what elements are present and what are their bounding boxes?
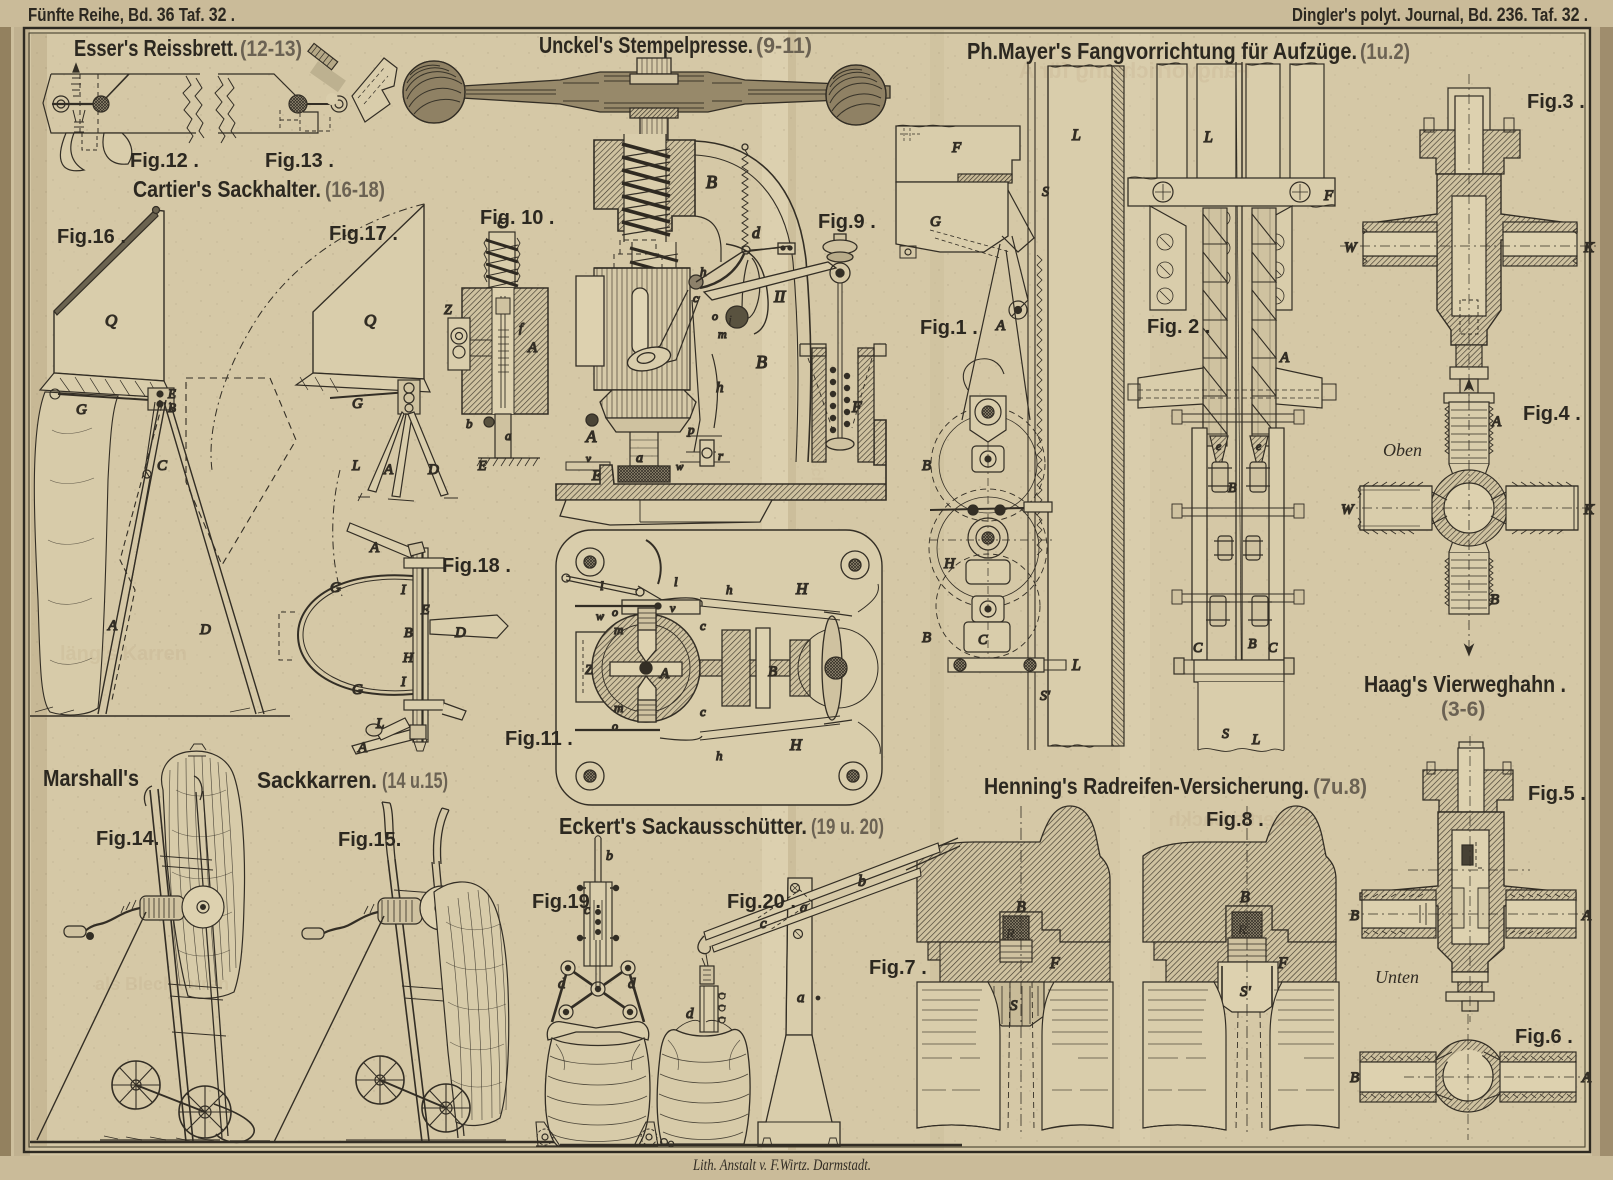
svg-text:S': S' [1040, 689, 1051, 704]
svg-text:Fig.5 .: Fig.5 . [1528, 783, 1586, 805]
svg-text:S: S [1010, 998, 1018, 1014]
svg-text:G: G [352, 396, 363, 412]
svg-text:Sackkarren.: Sackkarren. [257, 767, 377, 793]
svg-text:Q: Q [364, 311, 376, 330]
svg-text:v: v [586, 453, 591, 465]
svg-text:A: A [1491, 414, 1502, 430]
svg-text:b: b [858, 873, 866, 890]
svg-text:C: C [978, 633, 988, 648]
svg-text:p: p [687, 422, 695, 437]
svg-text:R: R [1237, 923, 1247, 938]
svg-text:o: o [612, 605, 618, 619]
svg-text:(12-13): (12-13) [240, 36, 302, 61]
svg-text:G: G [330, 580, 341, 596]
svg-text:v: v [670, 601, 676, 615]
svg-text:Fig.16 .: Fig.16 . [57, 226, 126, 248]
svg-text:Esser's Reissbrett.: Esser's Reissbrett. [74, 35, 238, 61]
svg-text:Oben: Oben [1383, 440, 1422, 460]
svg-text:d: d [686, 1006, 694, 1022]
svg-text:l: l [600, 578, 604, 593]
svg-text:A: A [1279, 350, 1290, 366]
svg-text:F: F [1277, 955, 1288, 972]
svg-text:c: c [760, 916, 767, 932]
svg-text:B: B [1350, 1070, 1359, 1086]
svg-text:w: w [676, 461, 684, 473]
svg-text:B: B [922, 458, 931, 474]
svg-text:Lith. Anstalt v. F.Wirtz. Darm: Lith. Anstalt v. F.Wirtz. Darmstadt. [692, 1157, 871, 1174]
svg-text:Dingler's polyt. Journal, Bd.: Dingler's polyt. Journal, Bd. 236. Taf. … [1292, 5, 1588, 26]
svg-text:A: A [383, 462, 394, 478]
svg-text:Fig.12 .: Fig.12 . [130, 150, 199, 172]
svg-text:B: B [756, 352, 767, 372]
svg-text:a: a [636, 451, 643, 466]
svg-text:Fig.14.: Fig.14. [96, 828, 159, 850]
svg-text:B: B [168, 400, 176, 415]
svg-text:R: R [1005, 927, 1015, 942]
svg-text:Fig.13 .: Fig.13 . [265, 150, 334, 172]
svg-text:A: A [1581, 908, 1592, 924]
svg-text:b: b [466, 416, 473, 431]
svg-text:D: D [199, 622, 211, 638]
svg-text:A: A [995, 318, 1006, 334]
svg-text:Q: Q [105, 311, 117, 330]
svg-text:Fig.19 .: Fig.19 . [532, 891, 601, 913]
svg-text:Eckert's Sackausschütter.: Eckert's Sackausschütter. [559, 813, 807, 839]
svg-text:c: c [700, 618, 706, 633]
svg-text:a: a [797, 990, 805, 1006]
svg-text:S': S' [1240, 984, 1252, 1000]
svg-text:F: F [851, 399, 862, 416]
svg-text:h: h [716, 748, 723, 763]
svg-text:c: c [693, 291, 699, 305]
svg-text:H: H [943, 556, 956, 572]
svg-text:E: E [420, 603, 430, 618]
svg-text:H: H [795, 581, 809, 598]
svg-text:S: S [1222, 727, 1229, 742]
svg-text:A: A [1581, 1070, 1592, 1086]
svg-text:K: K [1583, 240, 1595, 256]
svg-text:o: o [712, 309, 718, 323]
svg-text:B: B [404, 626, 413, 641]
svg-text:Haag's Vierweghahn .: Haag's Vierweghahn . [1364, 671, 1566, 697]
svg-text:c: c [700, 704, 706, 719]
svg-text:b: b [606, 849, 613, 864]
svg-text:(16-18): (16-18) [325, 177, 385, 202]
svg-text:W: W [1344, 240, 1358, 256]
svg-text:F: F [1323, 188, 1334, 204]
svg-text:G: G [930, 214, 941, 230]
svg-text:Fig.3 .: Fig.3 . [1527, 91, 1585, 113]
svg-text:d: d [752, 225, 761, 242]
svg-text:(19 u. 20): (19 u. 20) [811, 814, 884, 839]
svg-text:(7u.8): (7u.8) [1313, 774, 1367, 799]
svg-text:E: E [477, 459, 487, 474]
svg-text:B: B [706, 172, 717, 192]
svg-text:B: B [922, 630, 931, 646]
svg-text:F: F [1049, 955, 1060, 972]
svg-text:Ph.Mayer's Fangvorrichtung für: Ph.Mayer's Fangvorrichtung für Aufzüge. [967, 38, 1357, 64]
svg-text:m: m [614, 700, 623, 715]
svg-text:Fig.9 .: Fig.9 . [818, 211, 876, 233]
svg-text:D: D [427, 462, 439, 478]
svg-text:a: a [505, 428, 512, 443]
svg-text:e: e [1216, 439, 1222, 453]
svg-text:A: A [585, 427, 597, 446]
svg-text:Fig.8 .: Fig.8 . [1206, 809, 1264, 831]
svg-text:A: A [369, 540, 380, 556]
svg-text:G: G [76, 402, 87, 418]
svg-text:B: B [1228, 481, 1237, 496]
svg-text:Fig.6 .: Fig.6 . [1515, 1026, 1573, 1048]
svg-text:i: i [728, 313, 732, 329]
svg-text:B: B [768, 664, 777, 680]
svg-text:A: A [527, 340, 538, 356]
svg-text:B: B [1016, 899, 1026, 916]
svg-text:d: d [558, 976, 566, 992]
svg-text:B: B [1350, 908, 1359, 924]
svg-text:Fig. 10 .: Fig. 10 . [480, 207, 554, 229]
svg-text:Fig.7 .: Fig.7 . [869, 957, 927, 979]
svg-text:e: e [1256, 439, 1262, 453]
svg-text:Fig.4 .: Fig.4 . [1523, 403, 1581, 425]
svg-text:Fig. 2 .: Fig. 2 . [1147, 316, 1210, 338]
svg-text:(14 u.15): (14 u.15) [382, 768, 448, 793]
svg-text:Unten: Unten [1375, 967, 1419, 987]
svg-text:(9-11): (9-11) [756, 33, 812, 58]
svg-text:Fig.17 .: Fig.17 . [329, 223, 398, 245]
svg-text:Fig.18 .: Fig.18 . [442, 555, 511, 577]
svg-text:m: m [614, 622, 623, 637]
svg-text:A: A [357, 740, 368, 756]
svg-text:L: L [1071, 127, 1081, 144]
svg-text:(1u.2): (1u.2) [1360, 39, 1410, 64]
svg-text:Henning's Radreifen-Versicheru: Henning's Radreifen-Versicherung. [984, 773, 1309, 799]
svg-text:B: B [1240, 889, 1250, 906]
svg-text:K: K [1583, 502, 1595, 518]
svg-text:als Blechkarren: als Blechkarren [95, 974, 229, 994]
svg-text:L: L [1071, 657, 1081, 674]
svg-text:S: S [1042, 185, 1049, 200]
svg-text:Unckel's Stempelpresse.: Unckel's Stempelpresse. [539, 32, 753, 58]
svg-text:m: m [718, 327, 727, 341]
svg-text:C: C [1268, 641, 1278, 656]
svg-text:h: h [726, 582, 733, 597]
svg-text:Z: Z [444, 303, 452, 318]
svg-text:H: H [789, 737, 803, 754]
svg-text:A: A [107, 618, 118, 634]
svg-text:A: A [659, 666, 670, 682]
svg-text:h: h [700, 264, 707, 279]
svg-text:Fig.15.: Fig.15. [338, 829, 401, 851]
svg-text:d: d [628, 976, 636, 992]
svg-text:L: L [375, 716, 384, 732]
svg-text:L: L [1203, 129, 1213, 146]
svg-text:F: F [951, 140, 962, 156]
svg-text:(3-6): (3-6) [1441, 698, 1485, 721]
svg-text:h: h [716, 380, 724, 396]
svg-text:C: C [1193, 641, 1203, 656]
svg-text:E: E [167, 386, 176, 401]
svg-text:läng's Karren: läng's Karren [60, 643, 187, 665]
svg-text:Fünfte Reihe, Bd. 36 Taf. 32 .: Fünfte Reihe, Bd. 36 Taf. 32 . [28, 5, 235, 26]
svg-text:Fig.1 .: Fig.1 . [920, 317, 978, 339]
svg-text:H: H [402, 651, 414, 666]
svg-text:Cartier's Sackhalter.: Cartier's Sackhalter. [133, 176, 321, 202]
svg-text:W: W [1341, 502, 1355, 518]
svg-text:II: II [773, 287, 787, 306]
svg-text:w: w [596, 609, 604, 623]
svg-text:B: B [1248, 637, 1257, 652]
svg-text:G: G [352, 682, 363, 698]
svg-text:Stempel verschl: Stempel verschl [808, 368, 825, 491]
svg-text:B: B [1490, 592, 1499, 608]
svg-text:D: D [454, 625, 466, 641]
svg-text:C: C [157, 458, 168, 474]
svg-text:Marshall's: Marshall's [43, 765, 139, 791]
svg-text:Fig.11 .: Fig.11 . [505, 728, 573, 750]
svg-text:L: L [1251, 732, 1260, 748]
svg-text:Fig.20 .: Fig.20 . [727, 891, 796, 913]
svg-text:l: l [674, 574, 678, 589]
svg-text:L: L [351, 458, 360, 474]
